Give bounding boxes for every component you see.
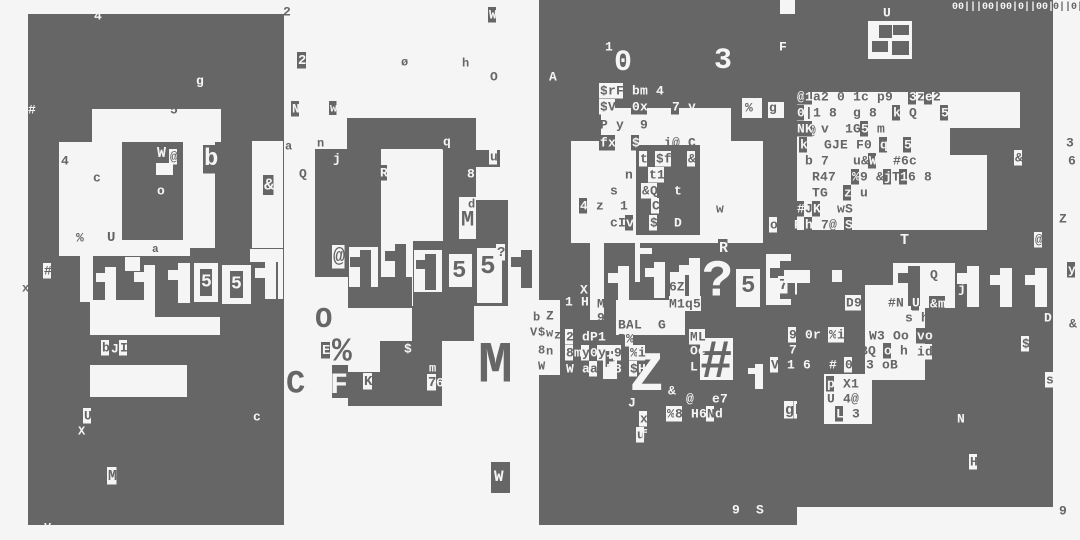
svg-text:X: X — [843, 376, 851, 391]
svg-text:0: 0 — [805, 327, 813, 342]
svg-text:$: $ — [656, 151, 664, 166]
svg-text:U: U — [827, 391, 835, 406]
svg-text:W: W — [494, 468, 504, 486]
svg-text:2: 2 — [283, 4, 291, 19]
svg-text:?: ? — [702, 253, 733, 312]
svg-text:I: I — [120, 340, 128, 355]
svg-text:$: $ — [600, 99, 608, 114]
svg-text:n: n — [625, 167, 633, 182]
svg-text:c: c — [909, 153, 917, 168]
svg-text:@: @ — [333, 246, 345, 269]
svg-text:o: o — [925, 328, 933, 343]
svg-text:b: b — [805, 153, 813, 168]
svg-text:9: 9 — [1059, 503, 1067, 518]
svg-text:9: 9 — [732, 502, 740, 517]
svg-text:#: # — [797, 201, 805, 216]
svg-text:&: & — [1069, 316, 1077, 331]
svg-text:&: & — [264, 177, 275, 196]
svg-text:n: n — [546, 345, 553, 359]
svg-text:9: 9 — [597, 310, 605, 325]
svg-text:k: k — [893, 105, 901, 120]
svg-text:j: j — [884, 169, 892, 184]
svg-text:2: 2 — [933, 89, 941, 104]
svg-text:D: D — [636, 198, 644, 213]
svg-text:g: g — [769, 100, 777, 115]
svg-text:T: T — [812, 185, 820, 200]
svg-text:t: t — [674, 183, 682, 198]
svg-text:S: S — [845, 217, 853, 232]
svg-text:1: 1 — [845, 121, 853, 136]
svg-text:e: e — [925, 89, 933, 104]
svg-text:q: q — [605, 310, 613, 325]
svg-text:x: x — [608, 135, 616, 150]
svg-text:q: q — [685, 296, 693, 311]
svg-text:w: w — [837, 201, 845, 216]
svg-text:@: @ — [797, 89, 805, 104]
svg-text:i: i — [917, 344, 925, 359]
svg-text:&: & — [668, 383, 676, 398]
svg-text:E: E — [840, 137, 848, 152]
svg-text:G: G — [853, 121, 861, 136]
svg-text:$: $ — [632, 135, 640, 150]
svg-text:6: 6 — [908, 169, 916, 184]
svg-text:@: @ — [829, 217, 837, 232]
svg-text:J: J — [805, 201, 813, 216]
svg-text:&: & — [688, 151, 696, 166]
svg-text:8: 8 — [467, 166, 475, 181]
svg-text:&: & — [1015, 150, 1023, 165]
svg-text:t: t — [649, 167, 657, 182]
svg-text:f: f — [600, 135, 608, 150]
svg-text:q: q — [880, 137, 888, 152]
svg-text:4: 4 — [933, 328, 941, 343]
svg-text:z: z — [917, 89, 925, 104]
svg-text:9: 9 — [640, 117, 648, 132]
svg-text:s: s — [905, 310, 913, 325]
svg-text:W: W — [157, 145, 166, 162]
svg-text:8: 8 — [829, 105, 837, 120]
svg-text:#: # — [44, 263, 52, 278]
svg-text:6: 6 — [901, 153, 909, 168]
svg-text:D: D — [846, 295, 854, 310]
svg-text:8: 8 — [538, 344, 545, 358]
svg-text:s: s — [1046, 372, 1054, 387]
svg-text:b: b — [102, 340, 110, 355]
svg-text:N: N — [896, 295, 904, 310]
svg-text:$: $ — [650, 215, 658, 230]
svg-text:A: A — [549, 69, 557, 84]
svg-text:x: x — [640, 411, 648, 426]
svg-text:5: 5 — [201, 272, 212, 292]
svg-text:H: H — [970, 454, 978, 469]
svg-text:8: 8 — [566, 345, 574, 360]
svg-text:7: 7 — [828, 169, 836, 184]
svg-text:%: % — [852, 169, 860, 184]
svg-text:Z: Z — [1059, 211, 1067, 226]
svg-text:d: d — [925, 344, 933, 359]
svg-text:R: R — [380, 165, 388, 180]
svg-text:P: P — [600, 117, 608, 132]
svg-text:9: 9 — [860, 169, 868, 184]
svg-text:a: a — [582, 361, 590, 376]
svg-text:0: 0 — [870, 295, 878, 310]
svg-text:5: 5 — [904, 137, 912, 152]
svg-text:L: L — [698, 329, 706, 344]
svg-text:y: y — [1068, 262, 1076, 277]
svg-text:N: N — [707, 406, 715, 421]
svg-text:4: 4 — [580, 198, 588, 213]
svg-text:c: c — [253, 409, 261, 424]
svg-text:1: 1 — [900, 169, 908, 184]
svg-text:g: g — [853, 105, 861, 120]
svg-text:y: y — [616, 117, 624, 132]
svg-text:7: 7 — [821, 153, 829, 168]
svg-text:3: 3 — [714, 44, 732, 78]
svg-text:h: h — [805, 217, 813, 232]
svg-text:U: U — [107, 230, 115, 246]
svg-text:r: r — [608, 83, 616, 98]
svg-text:y: y — [688, 99, 696, 114]
svg-text:#: # — [888, 295, 896, 310]
svg-text:d: d — [582, 329, 590, 344]
svg-text:Q: Q — [299, 166, 307, 181]
svg-text:F: F — [856, 137, 864, 152]
svg-text:0: 0 — [845, 357, 853, 372]
svg-text:7: 7 — [789, 342, 797, 357]
svg-text:C: C — [652, 198, 660, 213]
svg-text:w: w — [546, 327, 554, 341]
svg-text:L: L — [690, 359, 698, 374]
svg-text:L: L — [836, 406, 844, 421]
svg-text:H: H — [691, 406, 699, 421]
svg-text:0||0|||: 0||0||| — [1053, 1, 1080, 13]
svg-text:i: i — [638, 345, 646, 360]
svg-text:Q: Q — [930, 267, 938, 282]
svg-text:U: U — [883, 5, 891, 20]
svg-text:g: g — [785, 402, 794, 419]
svg-text:%: % — [332, 333, 352, 370]
svg-text:R: R — [945, 310, 953, 325]
svg-text:o: o — [901, 328, 909, 343]
svg-text:2: 2 — [953, 310, 961, 325]
svg-text:a: a — [590, 361, 598, 376]
svg-text:m: m — [640, 83, 648, 98]
svg-text:6: 6 — [1068, 153, 1076, 168]
svg-text:%: % — [667, 406, 675, 421]
svg-text:p: p — [877, 89, 885, 104]
svg-text:W: W — [869, 153, 877, 168]
svg-text:W: W — [566, 361, 574, 376]
svg-text:m: m — [877, 121, 885, 136]
svg-text:1: 1 — [787, 357, 795, 372]
svg-text:R: R — [618, 331, 626, 346]
svg-text:7: 7 — [720, 391, 728, 406]
svg-text:o: o — [884, 343, 892, 358]
svg-text:4: 4 — [94, 8, 102, 23]
svg-text:5: 5 — [452, 258, 466, 285]
svg-text:4: 4 — [61, 153, 69, 168]
svg-text:D: D — [674, 215, 682, 230]
svg-text:u: u — [860, 185, 868, 200]
svg-text:v: v — [626, 215, 634, 230]
svg-text:?: ? — [497, 245, 505, 261]
svg-text:A: A — [626, 317, 634, 332]
svg-text:F: F — [616, 83, 624, 98]
svg-text:ø: ø — [401, 56, 408, 70]
svg-text:s: s — [610, 183, 618, 198]
svg-text:@: @ — [686, 391, 694, 406]
svg-text:%: % — [829, 327, 837, 342]
svg-text:R: R — [812, 169, 820, 184]
svg-text:K: K — [805, 121, 813, 136]
svg-text:Z: Z — [546, 308, 554, 323]
svg-text:8: 8 — [869, 105, 877, 120]
svg-text:2: 2 — [298, 53, 306, 69]
svg-text:1: 1 — [853, 89, 861, 104]
svg-text:V: V — [608, 99, 616, 114]
svg-text:Q: Q — [868, 343, 876, 358]
svg-text:5: 5 — [741, 273, 755, 300]
svg-text:r: r — [813, 327, 821, 342]
svg-text:c: c — [93, 170, 101, 185]
svg-text:j: j — [333, 151, 341, 166]
svg-text:v: v — [44, 520, 51, 534]
svg-text:M: M — [597, 296, 605, 311]
svg-text:#: # — [829, 357, 837, 372]
svg-text:u: u — [853, 153, 861, 168]
svg-text:h: h — [900, 343, 908, 358]
svg-text:&: & — [930, 296, 938, 311]
svg-text:W: W — [489, 7, 497, 22]
svg-text:@: @ — [170, 149, 178, 164]
svg-text:L: L — [634, 317, 642, 332]
svg-text:a: a — [285, 140, 292, 154]
svg-text:%: % — [630, 345, 638, 360]
svg-text:o: o — [157, 183, 165, 198]
svg-text:0: 0 — [590, 345, 598, 360]
svg-text:i: i — [837, 327, 845, 342]
svg-text:m: m — [634, 331, 642, 346]
svg-text:F: F — [779, 39, 787, 54]
svg-text:$: $ — [1022, 336, 1030, 351]
svg-text:0: 0 — [797, 105, 805, 120]
svg-text:o: o — [770, 217, 778, 232]
svg-text:S: S — [845, 201, 853, 216]
svg-text:w: w — [716, 201, 724, 216]
svg-text:O: O — [690, 343, 698, 358]
svg-text:1: 1 — [598, 329, 606, 344]
svg-text:%: % — [76, 230, 84, 245]
svg-text:Q: Q — [909, 105, 917, 120]
svg-text:y: y — [582, 345, 590, 360]
svg-text:a: a — [813, 89, 821, 104]
svg-text:0: 0 — [864, 137, 872, 152]
svg-text:5: 5 — [170, 102, 178, 117]
svg-text:1: 1 — [677, 296, 685, 311]
svg-text:W: W — [538, 360, 546, 374]
svg-text:H: H — [581, 294, 589, 309]
svg-text:1: 1 — [620, 198, 628, 213]
svg-text:P: P — [590, 329, 598, 344]
svg-text:G: G — [824, 137, 832, 152]
svg-text:00|||00|00|0||00|: 00|||00|00|0||00| — [952, 1, 1054, 13]
svg-text:r: r — [477, 279, 485, 295]
svg-text:6Z: 6Z — [669, 279, 685, 294]
svg-text:G: G — [658, 317, 666, 332]
svg-text:v: v — [917, 328, 925, 343]
svg-text:n: n — [317, 137, 324, 151]
svg-text:%: % — [745, 100, 753, 115]
svg-text:b: b — [533, 311, 540, 325]
svg-text:V: V — [771, 357, 779, 372]
svg-text:1: 1 — [851, 376, 859, 391]
svg-text:e: e — [712, 391, 720, 406]
svg-text:M: M — [108, 468, 117, 485]
svg-text:&: & — [642, 183, 650, 198]
svg-text:M: M — [669, 296, 677, 311]
svg-text:T: T — [892, 169, 900, 184]
svg-text:O: O — [490, 69, 498, 84]
svg-text:|: | — [805, 105, 813, 120]
svg-text:N: N — [292, 101, 300, 116]
svg-text:1: 1 — [813, 105, 821, 120]
svg-text:$: $ — [600, 83, 608, 98]
svg-text:M: M — [461, 208, 474, 233]
svg-text:K: K — [813, 201, 821, 216]
svg-text:X: X — [78, 425, 86, 439]
svg-text:#: # — [893, 153, 901, 168]
svg-text:U: U — [84, 408, 92, 423]
svg-text:5: 5 — [606, 361, 614, 376]
svg-text:1: 1 — [657, 167, 665, 182]
svg-text:T: T — [900, 232, 909, 249]
svg-text:m: m — [429, 362, 436, 376]
svg-text:0: 0 — [614, 46, 632, 80]
svg-text:p: p — [827, 376, 835, 391]
svg-text:5: 5 — [480, 251, 496, 281]
svg-text:P: P — [794, 217, 802, 232]
svg-text:3: 3 — [909, 89, 917, 104]
svg-text:D: D — [1044, 310, 1052, 325]
svg-text:@: @ — [1035, 232, 1043, 247]
svg-text:7: 7 — [821, 217, 829, 232]
svg-text:5: 5 — [231, 274, 242, 294]
svg-text:S: S — [756, 502, 764, 517]
svg-text:C: C — [688, 135, 696, 150]
svg-text:1: 1 — [605, 39, 613, 54]
svg-text:I: I — [618, 215, 626, 230]
svg-text:h: h — [462, 57, 469, 71]
svg-text:3: 3 — [1066, 135, 1074, 150]
svg-text:m: m — [574, 345, 582, 360]
svg-text:z: z — [596, 198, 604, 213]
svg-text:1: 1 — [805, 89, 813, 104]
svg-text:$: $ — [630, 361, 638, 376]
svg-text:c: c — [861, 89, 869, 104]
svg-text:O: O — [315, 303, 332, 336]
svg-text:b: b — [632, 83, 640, 98]
svg-text:E: E — [322, 343, 330, 359]
svg-text:8: 8 — [924, 169, 932, 184]
svg-text:k: k — [929, 310, 937, 325]
svg-text:v: v — [821, 121, 829, 136]
svg-text:9: 9 — [854, 295, 862, 310]
svg-text:a: a — [152, 244, 159, 256]
svg-text:k: k — [858, 357, 866, 372]
svg-text:5: 5 — [941, 105, 949, 120]
svg-text:M: M — [690, 329, 698, 344]
svg-text:5: 5 — [693, 296, 701, 311]
svg-text:P: P — [155, 394, 163, 409]
svg-text:&: & — [861, 153, 869, 168]
svg-text:k: k — [800, 137, 808, 152]
svg-text:N: N — [797, 121, 805, 136]
svg-text:8: 8 — [675, 406, 683, 421]
svg-text:J: J — [111, 341, 119, 356]
svg-text:G: G — [820, 185, 828, 200]
svg-text:B: B — [618, 317, 626, 332]
svg-text:x: x — [22, 282, 29, 296]
svg-text:J: J — [832, 137, 840, 152]
svg-text:c: c — [610, 215, 618, 230]
svg-text:6: 6 — [803, 357, 811, 372]
svg-text:m: m — [938, 296, 946, 311]
svg-text:8: 8 — [852, 343, 860, 358]
svg-text:9: 9 — [614, 345, 622, 360]
svg-text:@: @ — [672, 135, 680, 150]
svg-text:t: t — [640, 151, 648, 166]
svg-text:1: 1 — [565, 294, 573, 309]
svg-text:O: O — [893, 328, 901, 343]
svg-text:i: i — [664, 135, 672, 150]
svg-text:d: d — [715, 406, 723, 421]
svg-text:#: # — [28, 102, 36, 117]
svg-text:@: @ — [851, 391, 859, 406]
svg-text:6: 6 — [699, 406, 707, 421]
svg-text:Q: Q — [650, 183, 658, 198]
svg-text:0: 0 — [632, 99, 640, 114]
svg-text:4: 4 — [656, 83, 664, 98]
svg-text:2: 2 — [566, 329, 574, 344]
svg-text:C: C — [286, 366, 305, 403]
svg-text:u: u — [490, 149, 498, 164]
svg-text:3: 3 — [852, 406, 860, 421]
svg-text:0: 0 — [837, 89, 845, 104]
svg-text:$: $ — [404, 341, 412, 356]
svg-text:H: H — [638, 361, 646, 376]
svg-text:w: w — [330, 102, 338, 116]
svg-text:x: x — [640, 99, 648, 114]
svg-text:B: B — [860, 343, 868, 358]
svg-text:4: 4 — [843, 391, 851, 406]
svg-text:7: 7 — [672, 99, 680, 114]
svg-text:9: 9 — [789, 327, 797, 342]
svg-text:3: 3 — [866, 357, 874, 372]
svg-text:W: W — [869, 328, 877, 343]
svg-text:6: 6 — [436, 375, 444, 390]
svg-text:1: 1 — [606, 345, 614, 360]
svg-text:F: F — [330, 369, 348, 403]
svg-text:z: z — [554, 329, 561, 343]
svg-text:2: 2 — [821, 89, 829, 104]
svg-text:B: B — [890, 357, 898, 372]
svg-text:y: y — [598, 345, 606, 360]
svg-text:z: z — [844, 185, 852, 200]
svg-text:e: e — [698, 343, 706, 358]
svg-text:4: 4 — [820, 169, 828, 184]
svg-text:$: $ — [538, 326, 545, 340]
svg-text:j: j — [958, 281, 966, 296]
